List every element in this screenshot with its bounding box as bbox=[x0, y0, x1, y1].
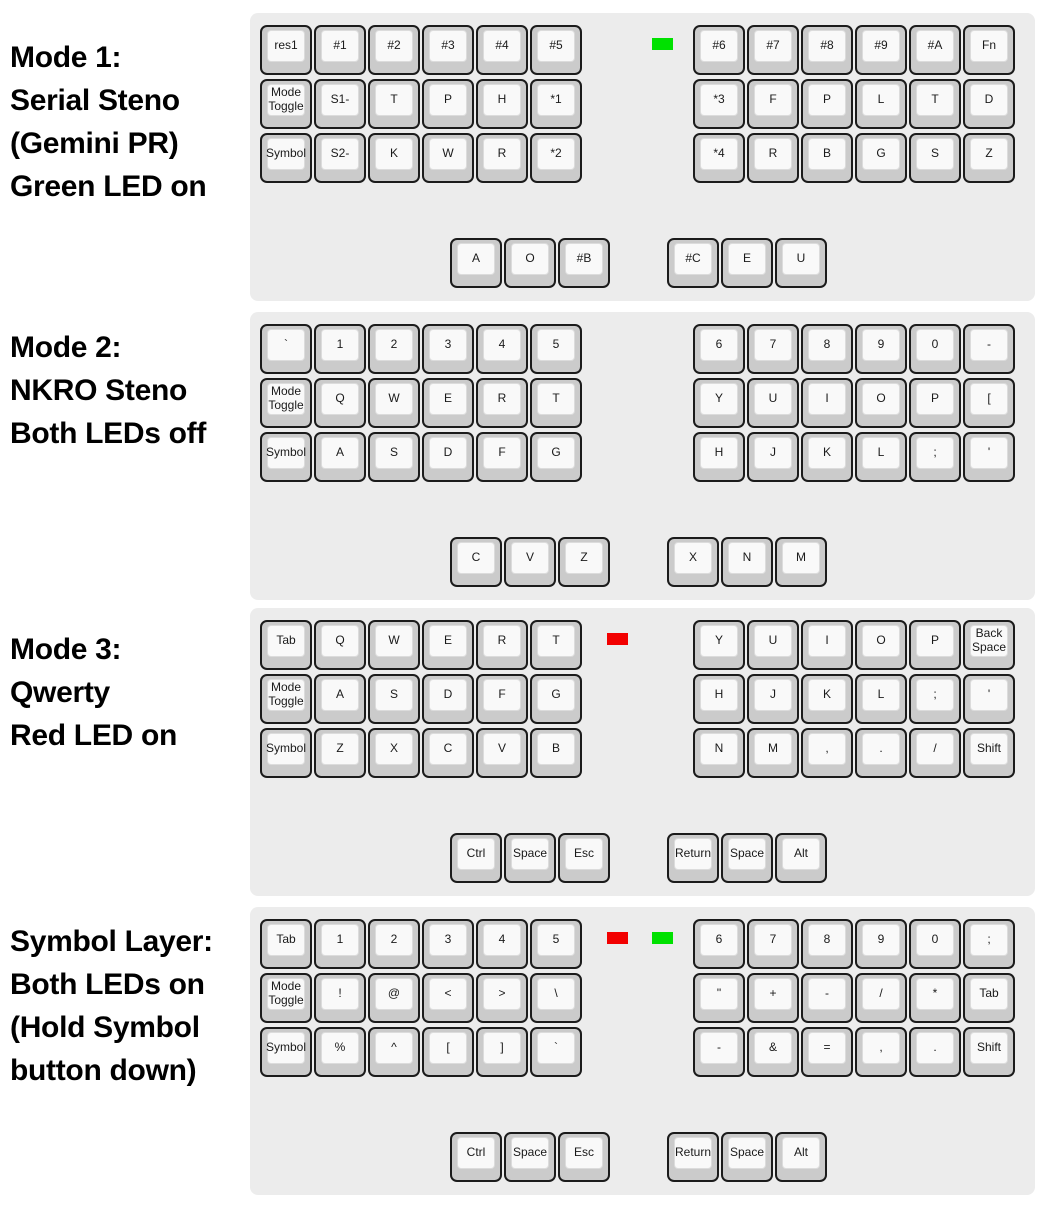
key: . bbox=[855, 728, 907, 778]
keycap-legend: B bbox=[552, 742, 560, 756]
mode-3-label: Mode 3: Qwerty Red LED on bbox=[10, 628, 177, 757]
key: ; bbox=[909, 432, 961, 482]
keycap-top: S2- bbox=[321, 138, 359, 170]
keycap-legend: T bbox=[552, 634, 559, 648]
keycap-legend: Y bbox=[715, 634, 723, 648]
keycap-top: J bbox=[754, 437, 792, 469]
keycap-top: Tab bbox=[267, 924, 305, 956]
key-i: I bbox=[801, 620, 853, 670]
keycap-legend: D bbox=[985, 93, 994, 107]
keycap-top: U bbox=[754, 625, 792, 657]
key-6: 6 bbox=[693, 324, 745, 374]
keycap-legend: R bbox=[498, 392, 507, 406]
key-tab: Tab bbox=[260, 919, 312, 969]
key-fn: Fn bbox=[963, 25, 1015, 75]
key-esc: Esc bbox=[558, 833, 610, 883]
key-8: #8 bbox=[801, 25, 853, 75]
key-8: 8 bbox=[801, 324, 853, 374]
key-g: G bbox=[530, 674, 582, 724]
key-a: A bbox=[450, 238, 502, 288]
key-z: Z bbox=[963, 133, 1015, 183]
keycap-legend: Alt bbox=[794, 1146, 808, 1160]
keycap-top: Esc bbox=[565, 1137, 603, 1169]
keycap-legend: G bbox=[551, 446, 560, 460]
keycap-legend: Tab bbox=[276, 634, 295, 648]
key-mode-toggle: Mode Toggle bbox=[260, 674, 312, 724]
keycap-top: Q bbox=[321, 383, 359, 415]
key: . bbox=[909, 1027, 961, 1077]
keycap-legend: & bbox=[769, 1041, 777, 1055]
keycap-legend: * bbox=[933, 987, 938, 1001]
keycap-top: *4 bbox=[700, 138, 738, 170]
keycap-legend: Esc bbox=[574, 847, 594, 861]
keycap-top: Ctrl bbox=[457, 838, 495, 870]
keycap-top: H bbox=[483, 84, 521, 116]
keycap-top: 2 bbox=[375, 329, 413, 361]
keycap-legend: ; bbox=[933, 446, 936, 460]
keycap-legend: Symbol bbox=[266, 742, 306, 756]
keycap-top: Tab bbox=[970, 978, 1008, 1010]
keycap-legend: E bbox=[444, 634, 452, 648]
mode-1-keyboard-panel: res1#1#2#3#4#5Mode ToggleS1-TPH*1SymbolS… bbox=[250, 13, 1035, 301]
keycap-legend: F bbox=[498, 446, 505, 460]
keycap-top: G bbox=[537, 437, 575, 469]
key-a: A bbox=[314, 432, 366, 482]
key: > bbox=[476, 973, 528, 1023]
keycap-top: M bbox=[754, 733, 792, 765]
key-space: Space bbox=[504, 1132, 556, 1182]
keycap-top: L bbox=[862, 84, 900, 116]
key-y: Y bbox=[693, 620, 745, 670]
keycap-top: ] bbox=[483, 1032, 521, 1064]
keycap-legend: 9 bbox=[878, 338, 885, 352]
keycap-legend: > bbox=[498, 987, 505, 1001]
key-k: K bbox=[801, 432, 853, 482]
key: = bbox=[801, 1027, 853, 1077]
key-o: O bbox=[504, 238, 556, 288]
keycap-legend: J bbox=[770, 446, 776, 460]
keycap-top: #1 bbox=[321, 30, 359, 62]
keycap-top: Space bbox=[728, 1137, 766, 1169]
keycap-top: Space bbox=[511, 1137, 549, 1169]
keyboard-modes-figure: Mode 1: Serial Steno (Gemini PR) Green L… bbox=[0, 0, 1041, 1205]
keycap-top: Y bbox=[700, 383, 738, 415]
key-alt: Alt bbox=[775, 833, 827, 883]
keycap-legend: S1- bbox=[331, 93, 350, 107]
keycap-top: > bbox=[483, 978, 521, 1010]
keycap-top: T bbox=[916, 84, 954, 116]
keycap-top: - bbox=[970, 329, 1008, 361]
key: ; bbox=[963, 919, 1015, 969]
key-1: 1 bbox=[314, 919, 366, 969]
keycap-top: *2 bbox=[537, 138, 575, 170]
keycap-legend: W bbox=[388, 392, 399, 406]
keycap-top: Fn bbox=[970, 30, 1008, 62]
key-e: E bbox=[422, 620, 474, 670]
key-tab: Tab bbox=[260, 620, 312, 670]
key-shift: Shift bbox=[963, 1027, 1015, 1077]
key-s1: S1- bbox=[314, 79, 366, 129]
keycap-top: < bbox=[429, 978, 467, 1010]
keycap-legend: Tab bbox=[979, 987, 998, 1001]
keycap-legend: ` bbox=[284, 338, 288, 352]
keycap-top: Return bbox=[674, 1137, 712, 1169]
keycap-legend: 6 bbox=[716, 933, 723, 947]
keycap-top: 8 bbox=[808, 329, 846, 361]
keycap-legend: #6 bbox=[712, 39, 725, 53]
keycap-legend: U bbox=[769, 634, 778, 648]
key-j: J bbox=[747, 674, 799, 724]
keycap-legend: I bbox=[825, 634, 828, 648]
keycap-top: 0 bbox=[916, 924, 954, 956]
key-return: Return bbox=[667, 1132, 719, 1182]
key-o: O bbox=[855, 620, 907, 670]
key-2: *2 bbox=[530, 133, 582, 183]
key-4: 4 bbox=[476, 919, 528, 969]
keycap-legend: #3 bbox=[441, 39, 454, 53]
keycap-top: / bbox=[862, 978, 900, 1010]
key-9: 9 bbox=[855, 919, 907, 969]
keycap-top: 7 bbox=[754, 329, 792, 361]
keycap-legend: 2 bbox=[391, 933, 398, 947]
key: < bbox=[422, 973, 474, 1023]
keycap-legend: S bbox=[390, 688, 398, 702]
key-s: S bbox=[909, 133, 961, 183]
keycap-legend: 3 bbox=[445, 933, 452, 947]
keycap-top: 1 bbox=[321, 924, 359, 956]
keycap-top: 6 bbox=[700, 924, 738, 956]
keycap-top: ; bbox=[916, 679, 954, 711]
key-p: P bbox=[909, 620, 961, 670]
keycap-top: #3 bbox=[429, 30, 467, 62]
keycap-legend: P bbox=[931, 392, 939, 406]
key-res1: res1 bbox=[260, 25, 312, 75]
key-b: B bbox=[530, 728, 582, 778]
keycap-legend: Fn bbox=[982, 39, 996, 53]
keycap-legend: P bbox=[444, 93, 452, 107]
key-esc: Esc bbox=[558, 1132, 610, 1182]
key-h: H bbox=[693, 674, 745, 724]
keycap-legend: M bbox=[796, 551, 806, 565]
keycap-top: R bbox=[754, 138, 792, 170]
key-symbol: Symbol bbox=[260, 728, 312, 778]
keycap-top: Z bbox=[970, 138, 1008, 170]
keycap-top: % bbox=[321, 1032, 359, 1064]
keycap-legend: 9 bbox=[878, 933, 885, 947]
keycap-top: Z bbox=[321, 733, 359, 765]
key-back-space: Back Space bbox=[963, 620, 1015, 670]
keycap-legend: ^ bbox=[391, 1041, 397, 1055]
key-r: R bbox=[476, 620, 528, 670]
key-a: A bbox=[314, 674, 366, 724]
keycap-top: Y bbox=[700, 625, 738, 657]
keycap-top: 6 bbox=[700, 329, 738, 361]
keycap-legend: X bbox=[390, 742, 398, 756]
keycap-legend: . bbox=[933, 1041, 936, 1055]
keycap-top: 2 bbox=[375, 924, 413, 956]
keycap-legend: G bbox=[551, 688, 560, 702]
keycap-top: S bbox=[916, 138, 954, 170]
keycap-legend: Mode Toggle bbox=[268, 980, 304, 1008]
keycap-legend: W bbox=[442, 147, 453, 161]
key-9: #9 bbox=[855, 25, 907, 75]
key-u: U bbox=[775, 238, 827, 288]
keycap-legend: M bbox=[768, 742, 778, 756]
keycap-top: - bbox=[700, 1032, 738, 1064]
key-7: #7 bbox=[747, 25, 799, 75]
key-t: T bbox=[368, 79, 420, 129]
keycap-top: P bbox=[916, 383, 954, 415]
keycap-legend: N bbox=[715, 742, 724, 756]
keycap-top: Mode Toggle bbox=[267, 383, 305, 415]
keycap-legend: K bbox=[390, 147, 398, 161]
key-3: 3 bbox=[422, 919, 474, 969]
keycap-top: W bbox=[429, 138, 467, 170]
key-3: 3 bbox=[422, 324, 474, 374]
keycap-top: #A bbox=[916, 30, 954, 62]
keycap-legend: F bbox=[769, 93, 776, 107]
symbol-layer-keyboard-panel: Tab12345Mode Toggle!@<>\Symbol%^[]`67890… bbox=[250, 907, 1035, 1195]
keycap-top: Symbol bbox=[267, 1032, 305, 1064]
key-e: E bbox=[721, 238, 773, 288]
key: [ bbox=[422, 1027, 474, 1077]
keycap-legend: *1 bbox=[550, 93, 561, 107]
key-h: H bbox=[476, 79, 528, 129]
key-w: W bbox=[368, 378, 420, 428]
keycap-legend: Shift bbox=[977, 1041, 1001, 1055]
key-z: Z bbox=[558, 537, 610, 587]
keycap-top: 8 bbox=[808, 924, 846, 956]
keycap-legend: [ bbox=[446, 1041, 449, 1055]
keycap-top: H bbox=[700, 437, 738, 469]
key-s: S bbox=[368, 674, 420, 724]
keycap-legend: O bbox=[876, 634, 885, 648]
keycap-legend: B bbox=[823, 147, 831, 161]
keycap-top: R bbox=[483, 625, 521, 657]
keycap-legend: I bbox=[825, 392, 828, 406]
keycap-top: X bbox=[375, 733, 413, 765]
key-2: 2 bbox=[368, 324, 420, 374]
keycap-legend: Space bbox=[730, 847, 764, 861]
key-z: Z bbox=[314, 728, 366, 778]
key-0: 0 bbox=[909, 324, 961, 374]
keycap-legend: P bbox=[823, 93, 831, 107]
keycap-legend: #1 bbox=[333, 39, 346, 53]
keycap-legend: Mode Toggle bbox=[268, 86, 304, 114]
keycap-legend: Mode Toggle bbox=[268, 681, 304, 709]
keycap-top: N bbox=[700, 733, 738, 765]
keycap-legend: #5 bbox=[549, 39, 562, 53]
key-l: L bbox=[855, 432, 907, 482]
key-a: #A bbox=[909, 25, 961, 75]
keycap-top: ' bbox=[970, 437, 1008, 469]
keycap-legend: V bbox=[526, 551, 534, 565]
keycap-legend: @ bbox=[388, 987, 400, 1001]
keycap-legend: O bbox=[876, 392, 885, 406]
keycap-top: D bbox=[429, 679, 467, 711]
keycap-legend: = bbox=[823, 1041, 830, 1055]
keycap-top: . bbox=[916, 1032, 954, 1064]
keycap-legend: Shift bbox=[977, 742, 1001, 756]
key-2: 2 bbox=[368, 919, 420, 969]
red-led-indicator bbox=[607, 633, 628, 645]
key-r: R bbox=[476, 133, 528, 183]
keycap-top: C bbox=[457, 542, 495, 574]
keycap-top: G bbox=[862, 138, 900, 170]
keycap-legend: *3 bbox=[713, 93, 724, 107]
key: , bbox=[801, 728, 853, 778]
mode-3-keyboard-panel: TabQWERTMode ToggleASDFGSymbolZXCVBYUIOP… bbox=[250, 608, 1035, 896]
key-p: P bbox=[801, 79, 853, 129]
keycap-legend: K bbox=[823, 446, 831, 460]
keycap-legend: #A bbox=[928, 39, 943, 53]
keycap-top: Shift bbox=[970, 733, 1008, 765]
keycap-top: + bbox=[754, 978, 792, 1010]
keycap-top: A bbox=[321, 679, 359, 711]
keycap-top: K bbox=[808, 437, 846, 469]
keycap-legend: Symbol bbox=[266, 446, 306, 460]
keycap-top: A bbox=[321, 437, 359, 469]
keycap-top: P bbox=[429, 84, 467, 116]
key: ' bbox=[963, 432, 1015, 482]
keycap-legend: 8 bbox=[824, 338, 831, 352]
keycap-legend: ] bbox=[500, 1041, 503, 1055]
keycap-top: K bbox=[808, 679, 846, 711]
keycap-top: O bbox=[511, 243, 549, 275]
keycap-legend: R bbox=[769, 147, 778, 161]
keycap-legend: 0 bbox=[932, 338, 939, 352]
keycap-legend: 1 bbox=[337, 933, 344, 947]
keycap-legend: 4 bbox=[499, 933, 506, 947]
keycap-top: ` bbox=[537, 1032, 575, 1064]
keycap-legend: #8 bbox=[820, 39, 833, 53]
symbol-layer-label: Symbol Layer: Both LEDs on (Hold Symbol … bbox=[10, 920, 213, 1092]
keycap-legend: , bbox=[879, 1041, 882, 1055]
keycap-top: U bbox=[782, 243, 820, 275]
keycap-top: T bbox=[537, 625, 575, 657]
keycap-legend: H bbox=[715, 688, 724, 702]
keycap-legend: 4 bbox=[499, 338, 506, 352]
keycap-top: 4 bbox=[483, 924, 521, 956]
keycap-legend: Symbol bbox=[266, 1041, 306, 1055]
keycap-legend: C bbox=[444, 742, 453, 756]
keycap-legend: " bbox=[717, 987, 721, 1001]
keycap-legend: R bbox=[498, 634, 507, 648]
keycap-top: 5 bbox=[537, 924, 575, 956]
key-m: M bbox=[747, 728, 799, 778]
key-s2: S2- bbox=[314, 133, 366, 183]
keycap-legend: W bbox=[388, 634, 399, 648]
key: - bbox=[693, 1027, 745, 1077]
key-t: T bbox=[530, 378, 582, 428]
keycap-top: @ bbox=[375, 978, 413, 1010]
keycap-top: D bbox=[429, 437, 467, 469]
keycap-top: F bbox=[483, 679, 521, 711]
keycap-top: S1- bbox=[321, 84, 359, 116]
key: & bbox=[747, 1027, 799, 1077]
keycap-top: J bbox=[754, 679, 792, 711]
keycap-top: H bbox=[700, 679, 738, 711]
key-1: 1 bbox=[314, 324, 366, 374]
key-r: R bbox=[476, 378, 528, 428]
key-q: Q bbox=[314, 378, 366, 428]
keycap-top: #4 bbox=[483, 30, 521, 62]
green-led-indicator bbox=[652, 932, 673, 944]
keycap-top: Alt bbox=[782, 1137, 820, 1169]
keycap-legend: res1 bbox=[274, 39, 297, 53]
key-ctrl: Ctrl bbox=[450, 1132, 502, 1182]
keycap-legend: - bbox=[825, 987, 829, 1001]
key-t: T bbox=[530, 620, 582, 670]
key-o: O bbox=[855, 378, 907, 428]
key-x: X bbox=[667, 537, 719, 587]
keycap-legend: U bbox=[769, 392, 778, 406]
keycap-top: Symbol bbox=[267, 437, 305, 469]
keycap-legend: #9 bbox=[874, 39, 887, 53]
keycap-legend: , bbox=[825, 742, 828, 756]
key: [ bbox=[963, 378, 1015, 428]
key: \ bbox=[530, 973, 582, 1023]
key-r: R bbox=[747, 133, 799, 183]
key-f: F bbox=[747, 79, 799, 129]
key-l: L bbox=[855, 674, 907, 724]
keycap-legend: N bbox=[743, 551, 752, 565]
key-u: U bbox=[747, 620, 799, 670]
keycap-legend: L bbox=[878, 93, 885, 107]
key-e: E bbox=[422, 378, 474, 428]
key: - bbox=[963, 324, 1015, 374]
keycap-legend: ' bbox=[988, 688, 990, 702]
keycap-top: A bbox=[457, 243, 495, 275]
red-led-indicator bbox=[607, 932, 628, 944]
keycap-top: T bbox=[537, 383, 575, 415]
key-k: K bbox=[368, 133, 420, 183]
keycap-legend: G bbox=[876, 147, 885, 161]
keycap-top: E bbox=[429, 383, 467, 415]
keycap-top: Symbol bbox=[267, 138, 305, 170]
key-c: C bbox=[422, 728, 474, 778]
keycap-top: F bbox=[754, 84, 792, 116]
mode-1-label: Mode 1: Serial Steno (Gemini PR) Green L… bbox=[10, 36, 206, 208]
keycap-top: *3 bbox=[700, 84, 738, 116]
keycap-top: L bbox=[862, 679, 900, 711]
keycap-legend: Q bbox=[335, 634, 344, 648]
mode-2-keyboard-panel: `12345Mode ToggleQWERTSymbolASDFG67890-Y… bbox=[250, 312, 1035, 600]
keycap-legend: 7 bbox=[770, 933, 777, 947]
keycap-top: B bbox=[808, 138, 846, 170]
mode-2-label: Mode 2: NKRO Steno Both LEDs off bbox=[10, 326, 206, 455]
keycap-top: Mode Toggle bbox=[267, 84, 305, 116]
keycap-legend: E bbox=[743, 252, 751, 266]
keycap-top: ; bbox=[916, 437, 954, 469]
keycap-legend: 0 bbox=[932, 933, 939, 947]
key: ` bbox=[260, 324, 312, 374]
keycap-top: R bbox=[483, 383, 521, 415]
keycap-legend: A bbox=[336, 688, 344, 702]
keycap-top: 9 bbox=[862, 329, 900, 361]
keycap-top: Return bbox=[674, 838, 712, 870]
keycap-legend: T bbox=[390, 93, 397, 107]
keycap-top: G bbox=[537, 679, 575, 711]
keycap-legend: Alt bbox=[794, 847, 808, 861]
key-3: #3 bbox=[422, 25, 474, 75]
keycap-top: Z bbox=[565, 542, 603, 574]
key-g: G bbox=[530, 432, 582, 482]
keycap-top: 1 bbox=[321, 329, 359, 361]
key-w: W bbox=[422, 133, 474, 183]
key-d: D bbox=[422, 674, 474, 724]
keycap-top: R bbox=[483, 138, 521, 170]
